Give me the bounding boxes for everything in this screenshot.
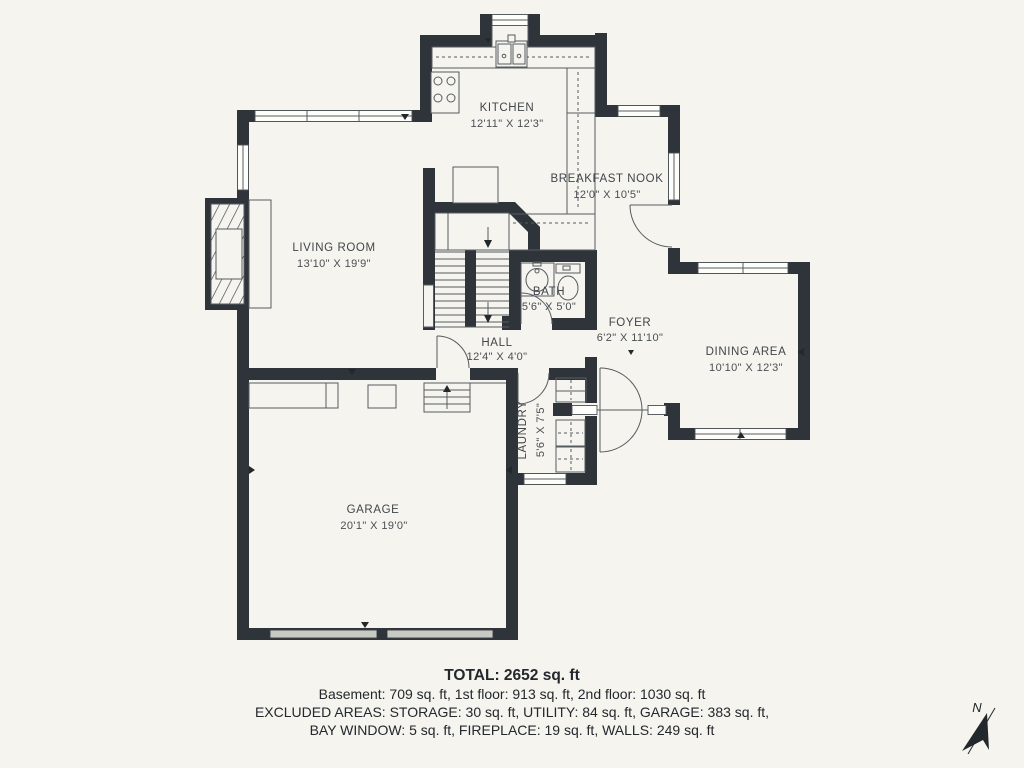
floorplan-svg: KITCHEN 12'11" X 12'3" BREAKFAST NOOK 12… <box>0 0 1024 768</box>
living-room-label: LIVING ROOM <box>292 242 375 254</box>
laundry-dims: 5'6" X 7'5" <box>535 403 547 457</box>
nook-window-right <box>669 153 680 200</box>
floorplan-page: { "colors": { "background": "#f5f4ee", "… <box>0 0 1024 768</box>
nook-window-top <box>618 106 660 117</box>
hall-garage-door <box>437 336 469 368</box>
kitchen-dims: 12'11" X 12'3" <box>470 118 543 130</box>
foyer-dims: 6'2" X 11'10" <box>597 332 664 344</box>
hall-label: HALL <box>481 337 512 349</box>
living-room-dims: 13'10" X 19'9" <box>297 258 371 270</box>
fireplace-icon <box>211 200 271 308</box>
garage-dims: 20'1" X 19'0" <box>340 520 407 532</box>
room-labels: KITCHEN 12'11" X 12'3" BREAKFAST NOOK 12… <box>292 102 786 532</box>
bath-dims: 5'6" X 5'0" <box>522 301 576 313</box>
stair-down-arrow <box>484 227 492 323</box>
breakfast-nook-dims: 12'0" X 10'5" <box>573 189 640 201</box>
dining-area-dims: 10'10" X 12'3" <box>709 362 783 374</box>
hall-dims: 12'4" X 4'0" <box>467 351 528 363</box>
laundry-label: LAUNDRY <box>517 401 529 460</box>
breakfast-nook-label: BREAKFAST NOOK <box>551 173 664 185</box>
washer-dryer-icon <box>556 420 585 472</box>
living-room-window-top <box>255 111 412 122</box>
foyer-label: FOYER <box>609 317 652 329</box>
bath-label: BATH <box>533 286 565 298</box>
total-area: TOTAL: 2652 sq. ft <box>0 666 1024 685</box>
front-door-sidelites <box>572 403 666 416</box>
laundry-window <box>524 474 566 485</box>
stove-icon <box>431 72 459 113</box>
dining-area-label: DINING AREA <box>706 346 787 358</box>
floor-areas: Basement: 709 sq. ft, 1st floor: 913 sq.… <box>0 685 1024 703</box>
garage-counter <box>249 383 396 408</box>
garage-label: GARAGE <box>347 504 400 516</box>
excluded-areas-line2: BAY WINDOW: 5 sq. ft, FIREPLACE: 19 sq. … <box>0 721 1024 739</box>
excluded-areas-line1: EXCLUDED AREAS: STORAGE: 30 sq. ft, UTIL… <box>0 703 1024 721</box>
living-room-window-left <box>238 145 249 190</box>
garage-door <box>270 628 493 640</box>
kitchen-label: KITCHEN <box>480 102 535 114</box>
dining-window-top <box>698 263 788 274</box>
laundry-closet <box>556 378 586 402</box>
area-summary: TOTAL: 2652 sq. ft Basement: 709 sq. ft,… <box>0 666 1024 739</box>
kitchen-sink-icon <box>496 35 527 67</box>
garage-steps <box>424 383 506 412</box>
nook-patio-door <box>630 205 672 247</box>
